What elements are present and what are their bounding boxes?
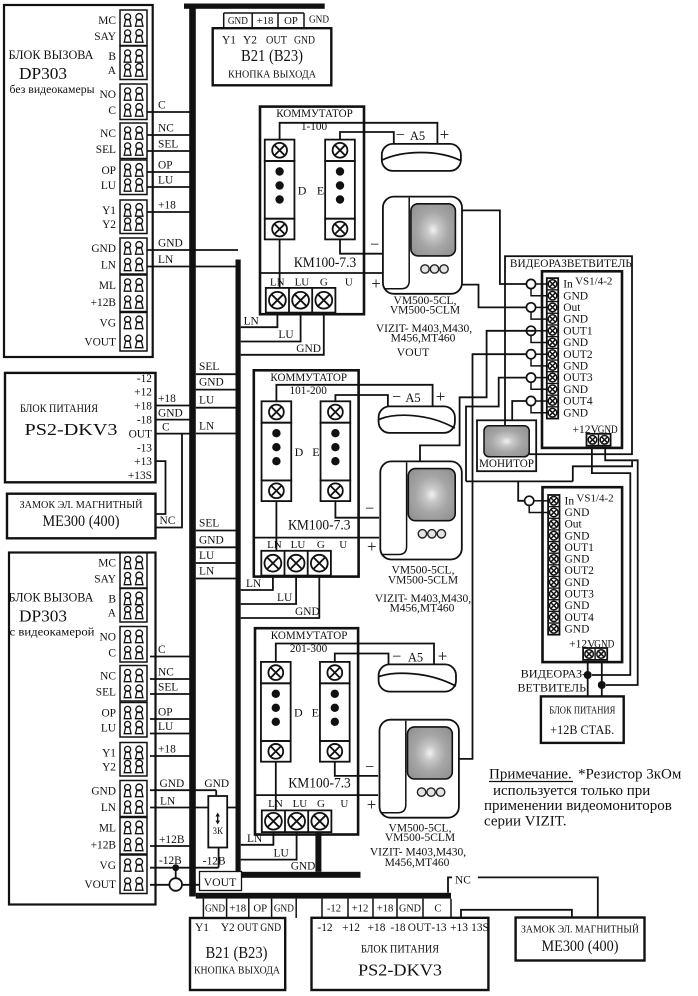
svg-text:-12: -12 bbox=[327, 903, 341, 915]
svg-text:ЗАМОК ЭЛ. МАГНИТНЫЙ: ЗАМОК ЭЛ. МАГНИТНЫЙ bbox=[521, 924, 639, 936]
svg-text:ВЕТВИТЕЛЬ: ВЕТВИТЕЛЬ bbox=[518, 681, 587, 695]
svg-text:ME300 (400): ME300 (400) bbox=[43, 513, 120, 530]
svg-text:LU: LU bbox=[277, 592, 292, 604]
svg-text:LN: LN bbox=[199, 566, 214, 578]
svg-text:GND: GND bbox=[565, 600, 590, 612]
svg-text:LN: LN bbox=[244, 315, 259, 327]
svg-text:КОММУТАТОР: КОММУТАТОР bbox=[270, 372, 347, 384]
svg-text:LN: LN bbox=[247, 833, 262, 845]
svg-text:OP: OP bbox=[253, 903, 267, 915]
svg-text:+: + bbox=[367, 795, 377, 814]
svg-text:−: − bbox=[365, 501, 374, 518]
svg-text:+12: +12 bbox=[342, 922, 360, 934]
svg-text:PS2-DKV3: PS2-DKV3 bbox=[25, 420, 118, 439]
svg-text:+12В: +12В bbox=[91, 297, 117, 309]
svg-text:GND: GND bbox=[295, 606, 320, 618]
svg-text:LU: LU bbox=[101, 723, 116, 735]
svg-text:SEL: SEL bbox=[199, 518, 219, 530]
svg-text:U: U bbox=[345, 277, 353, 289]
svg-text:OUT4: OUT4 bbox=[563, 396, 593, 408]
svg-text:GND: GND bbox=[563, 407, 588, 419]
svg-text:C: C bbox=[434, 903, 441, 915]
svg-text:Out: Out bbox=[563, 302, 581, 314]
svg-text:E: E bbox=[312, 445, 319, 459]
svg-text:SEL: SEL bbox=[158, 682, 178, 694]
svg-text:OUT3: OUT3 bbox=[565, 589, 595, 601]
svg-text:-12В: -12В bbox=[203, 856, 226, 868]
svg-text:VOUT: VOUT bbox=[84, 879, 116, 891]
svg-text:A: A bbox=[108, 65, 117, 77]
svg-text:МОНИТОР: МОНИТОР bbox=[479, 458, 534, 470]
svg-text:GND: GND bbox=[205, 903, 225, 915]
svg-text:применении видеомониторов: применении видеомониторов bbox=[484, 798, 672, 814]
svg-text:SEL: SEL bbox=[199, 361, 219, 373]
svg-text:+18: +18 bbox=[134, 401, 152, 413]
svg-text:OUT2: OUT2 bbox=[563, 349, 593, 361]
svg-text:без видеокамеры: без видеокамеры bbox=[10, 84, 95, 96]
svg-text:Y2: Y2 bbox=[102, 762, 116, 774]
svg-text:−: − bbox=[370, 237, 379, 254]
svg-text:GND: GND bbox=[565, 530, 590, 542]
svg-text:с видеокамерой: с видеокамерой bbox=[10, 627, 95, 639]
svg-text:Y1: Y1 bbox=[222, 35, 236, 47]
svg-text:БЛОК ВЫЗОВА: БЛОК ВЫЗОВА bbox=[9, 48, 94, 62]
svg-text:VOUT: VOUT bbox=[204, 875, 238, 889]
svg-text:GND: GND bbox=[91, 243, 116, 255]
svg-text:C: C bbox=[108, 648, 116, 660]
svg-text:G: G bbox=[317, 539, 325, 551]
svg-text:−: − bbox=[392, 389, 401, 406]
svg-text:NO: NO bbox=[100, 632, 116, 644]
svg-text:D: D bbox=[295, 445, 304, 459]
svg-text:LN: LN bbox=[101, 260, 116, 272]
svg-text:GND: GND bbox=[294, 35, 315, 47]
svg-text:КМ100-7.3: КМ100-7.3 bbox=[288, 776, 351, 792]
svg-text:PS2-DKV3: PS2-DKV3 bbox=[358, 961, 442, 980]
svg-text:101-200: 101-200 bbox=[290, 385, 328, 397]
svg-text:-13: -13 bbox=[431, 922, 446, 934]
svg-text:−: − bbox=[365, 759, 374, 776]
svg-text:+12: +12 bbox=[134, 387, 152, 399]
svg-text:КОММУТАТОР: КОММУТАТОР bbox=[276, 108, 353, 120]
svg-text:+: + bbox=[371, 274, 381, 293]
svg-text:GND: GND bbox=[260, 922, 281, 934]
svg-text:VG: VG bbox=[100, 318, 116, 330]
svg-text:GND: GND bbox=[565, 507, 590, 519]
svg-text:D: D bbox=[298, 183, 307, 197]
svg-text:Примечание.: Примечание. bbox=[489, 767, 572, 783]
svg-text:-13: -13 bbox=[137, 443, 152, 455]
svg-text:GND: GND bbox=[309, 14, 329, 26]
svg-text:+12В: +12В bbox=[91, 840, 117, 852]
svg-text:NC: NC bbox=[158, 667, 174, 679]
svg-text:КОММУТАТОР: КОММУТАТОР bbox=[271, 630, 348, 642]
svg-text:+13S: +13S bbox=[128, 470, 152, 482]
svg-text:GND: GND bbox=[158, 408, 183, 420]
svg-text:-12: -12 bbox=[317, 922, 332, 934]
svg-text:13S: 13S bbox=[471, 922, 489, 934]
svg-text:+12В СТАБ.: +12В СТАБ. bbox=[550, 723, 614, 737]
svg-text:B: B bbox=[108, 51, 116, 63]
svg-text:VM500-5CLM: VM500-5CLM bbox=[385, 832, 455, 844]
svg-text:GND: GND bbox=[291, 861, 316, 873]
svg-text:NC: NC bbox=[158, 123, 174, 135]
svg-text:NC: NC bbox=[455, 875, 471, 887]
svg-text:ML: ML bbox=[99, 280, 116, 292]
svg-text:GND: GND bbox=[563, 384, 588, 396]
svg-text:GND: GND bbox=[563, 290, 588, 302]
svg-text:NC: NC bbox=[100, 128, 116, 140]
svg-text:VOUT: VOUT bbox=[397, 345, 431, 359]
svg-text:GND: GND bbox=[565, 577, 590, 589]
svg-text:GND: GND bbox=[199, 377, 224, 389]
svg-text:OUT3: OUT3 bbox=[563, 372, 593, 384]
svg-text:SEL: SEL bbox=[96, 687, 116, 699]
svg-text:201-300: 201-300 bbox=[290, 643, 328, 655]
svg-text:C: C bbox=[108, 105, 116, 117]
svg-text:OUT1: OUT1 bbox=[565, 542, 595, 554]
svg-text:OP: OP bbox=[101, 708, 116, 720]
svg-text:E: E bbox=[312, 706, 319, 720]
svg-text:+18: +18 bbox=[158, 393, 176, 405]
svg-text:LU: LU bbox=[158, 721, 173, 733]
svg-text:OUT2: OUT2 bbox=[565, 565, 595, 577]
svg-text:+: + bbox=[436, 387, 446, 406]
svg-text:OP: OP bbox=[284, 15, 298, 27]
svg-text:GND: GND bbox=[160, 778, 185, 790]
svg-text:ВИДЕОРАЗВЕТВИТЕЛЬ: ВИДЕОРАЗВЕТВИТЕЛЬ bbox=[510, 256, 632, 270]
svg-text:DP303: DP303 bbox=[19, 607, 67, 626]
svg-text:U: U bbox=[339, 539, 347, 551]
svg-text:VOUT: VOUT bbox=[84, 337, 116, 349]
svg-text:LU: LU bbox=[199, 395, 214, 407]
svg-text:М456,МТ460: М456,МТ460 bbox=[385, 857, 450, 869]
svg-text:B21 (B23): B21 (B23) bbox=[241, 46, 303, 65]
svg-text:In: In bbox=[565, 495, 575, 507]
svg-text:ВИДЕОРАЗ-: ВИДЕОРАЗ- bbox=[521, 667, 587, 681]
svg-text:VS1/4-2: VS1/4-2 bbox=[576, 492, 613, 504]
svg-text:E: E bbox=[317, 183, 324, 197]
svg-text:GND: GND bbox=[565, 623, 590, 635]
svg-text:A5: A5 bbox=[405, 391, 420, 405]
svg-text:+13: +13 bbox=[134, 456, 152, 468]
svg-text:GND: GND bbox=[565, 554, 590, 566]
svg-text:A5: A5 bbox=[408, 651, 423, 665]
svg-text:М456,МТ460: М456,МТ460 bbox=[390, 603, 455, 615]
svg-text:C: C bbox=[158, 100, 166, 112]
svg-text:-12: -12 bbox=[137, 373, 152, 385]
svg-text:+18: +18 bbox=[158, 744, 176, 756]
svg-text:NC: NC bbox=[160, 515, 176, 527]
svg-text:БЛОК ПИТАНИЯ: БЛОК ПИТАНИЯ bbox=[549, 706, 615, 717]
svg-text:OP: OP bbox=[158, 160, 173, 172]
svg-text:Y1: Y1 bbox=[195, 922, 209, 934]
svg-text:Y2: Y2 bbox=[102, 219, 116, 231]
svg-text:+12В: +12В bbox=[159, 834, 185, 846]
svg-text:VG: VG bbox=[100, 860, 116, 872]
svg-text:GND: GND bbox=[158, 238, 183, 250]
svg-text:LU: LU bbox=[199, 550, 214, 562]
svg-text:SAY: SAY bbox=[94, 574, 116, 586]
svg-text:+18: +18 bbox=[377, 903, 394, 915]
svg-text:OUT1: OUT1 bbox=[563, 325, 593, 337]
svg-text:LN: LN bbox=[101, 802, 116, 814]
svg-text:Out: Out bbox=[565, 519, 583, 531]
svg-text:GND: GND bbox=[91, 786, 116, 798]
svg-text:+13: +13 bbox=[450, 922, 468, 934]
svg-text:OP: OP bbox=[101, 165, 116, 177]
svg-text:A: A bbox=[108, 608, 117, 620]
svg-text:GND: GND bbox=[563, 337, 588, 349]
svg-text:GND: GND bbox=[274, 903, 294, 915]
svg-text:A5: A5 bbox=[410, 129, 425, 143]
svg-text:LN: LN bbox=[158, 254, 173, 266]
svg-text:Y1: Y1 bbox=[102, 748, 116, 760]
svg-text:LU: LU bbox=[278, 329, 293, 341]
svg-text:LN: LN bbox=[199, 421, 214, 433]
svg-text:-18: -18 bbox=[137, 415, 152, 427]
svg-text:Y2: Y2 bbox=[243, 35, 257, 47]
svg-text:серии VIZIT.: серии VIZIT. bbox=[484, 813, 567, 829]
svg-text:КНОПКА ВЫХОДА: КНОПКА ВЫХОДА bbox=[228, 70, 316, 81]
svg-text:MC: MC bbox=[98, 558, 116, 570]
svg-text:In: In bbox=[563, 279, 573, 291]
svg-text:LN: LN bbox=[160, 796, 175, 808]
svg-text:NC: NC bbox=[100, 671, 116, 683]
svg-text:SEL: SEL bbox=[96, 144, 116, 156]
svg-text:LU: LU bbox=[293, 798, 308, 810]
svg-text:GND: GND bbox=[296, 343, 321, 355]
svg-text:OUT: OUT bbox=[129, 429, 152, 441]
svg-text:C: C bbox=[162, 422, 170, 434]
svg-text:MC: MC bbox=[98, 15, 116, 27]
svg-text:VM500-5CLM: VM500-5CLM bbox=[388, 575, 458, 587]
svg-text:БЛОК ВЫЗОВА: БЛОК ВЫЗОВА bbox=[9, 591, 94, 605]
svg-text:C: C bbox=[158, 644, 166, 656]
svg-text:LU: LU bbox=[291, 539, 306, 551]
svg-text:+18: +18 bbox=[229, 903, 246, 915]
svg-text:OUT: OUT bbox=[266, 35, 287, 47]
svg-text:*Резистор 3кОм: *Резистор 3кОм bbox=[578, 767, 682, 783]
svg-text:-18: -18 bbox=[390, 922, 405, 934]
svg-text:+18: +18 bbox=[158, 200, 176, 212]
svg-text:G: G bbox=[320, 277, 328, 289]
svg-text:LN: LN bbox=[267, 539, 282, 551]
svg-text:OP: OP bbox=[158, 707, 173, 719]
svg-text:LU: LU bbox=[274, 848, 289, 860]
svg-text:DP303: DP303 bbox=[19, 64, 67, 83]
svg-text:+: + bbox=[440, 125, 450, 144]
svg-text:ME300 (400): ME300 (400) bbox=[542, 938, 619, 955]
svg-text:G: G bbox=[317, 798, 325, 810]
svg-text:SAY: SAY bbox=[94, 31, 116, 43]
svg-text:GND: GND bbox=[399, 903, 421, 915]
svg-text:VS1/4-2: VS1/4-2 bbox=[575, 276, 612, 288]
svg-text:КМ100-7.3: КМ100-7.3 bbox=[294, 255, 357, 271]
svg-text:БЛОК ПИТАНИЯ: БЛОК ПИТАНИЯ bbox=[20, 403, 98, 415]
svg-text:используется только при: используется только при bbox=[493, 783, 650, 799]
svg-text:GND: GND bbox=[204, 778, 229, 790]
svg-text:КМ100-7.3: КМ100-7.3 bbox=[288, 518, 351, 534]
svg-text:GND: GND bbox=[563, 361, 588, 373]
svg-text:NO: NO bbox=[100, 89, 116, 101]
svg-text:КНОПКА ВЫХОДА: КНОПКА ВЫХОДА bbox=[194, 966, 280, 977]
svg-text:3К: 3К bbox=[213, 826, 225, 836]
svg-text:SEL: SEL bbox=[158, 139, 178, 151]
svg-text:-12В: -12В bbox=[159, 855, 182, 867]
svg-text:U: U bbox=[340, 798, 348, 810]
svg-text:БЛОК ПИТАНИЯ: БЛОК ПИТАНИЯ bbox=[361, 944, 439, 956]
svg-text:+12: +12 bbox=[352, 903, 369, 915]
svg-text:GND: GND bbox=[199, 534, 224, 546]
svg-text:+: + bbox=[438, 647, 448, 666]
svg-text:М456,МТ460: М456,МТ460 bbox=[391, 333, 456, 345]
svg-text:LU: LU bbox=[101, 180, 116, 192]
svg-text:ЗАМОК ЭЛ. МАГНИТНЫЙ: ЗАМОК ЭЛ. МАГНИТНЫЙ bbox=[20, 499, 143, 511]
svg-text:GND: GND bbox=[228, 15, 248, 27]
svg-text:+18: +18 bbox=[368, 922, 386, 934]
svg-text:Y2: Y2 bbox=[221, 922, 235, 934]
svg-text:D: D bbox=[294, 706, 303, 720]
svg-text:LN: LN bbox=[270, 277, 285, 289]
svg-text:B: B bbox=[108, 594, 116, 606]
svg-text:+: + bbox=[367, 537, 377, 556]
svg-text:OUT: OUT bbox=[237, 922, 258, 934]
svg-text:ML: ML bbox=[99, 823, 116, 835]
svg-text:LU: LU bbox=[295, 277, 310, 289]
svg-text:−: − bbox=[395, 127, 404, 144]
svg-text:GND: GND bbox=[563, 314, 588, 326]
svg-text:OUT: OUT bbox=[408, 922, 431, 934]
svg-text:LN: LN bbox=[246, 578, 261, 590]
svg-text:B21 (B23): B21 (B23) bbox=[206, 943, 268, 962]
svg-text:VM500-5CLM: VM500-5CLM bbox=[390, 305, 460, 317]
svg-text:OUT4: OUT4 bbox=[565, 612, 595, 624]
svg-text:−: − bbox=[392, 649, 401, 666]
svg-text:LU: LU bbox=[158, 175, 173, 187]
svg-text:+18: +18 bbox=[257, 15, 274, 27]
svg-text:Y1: Y1 bbox=[102, 205, 116, 217]
